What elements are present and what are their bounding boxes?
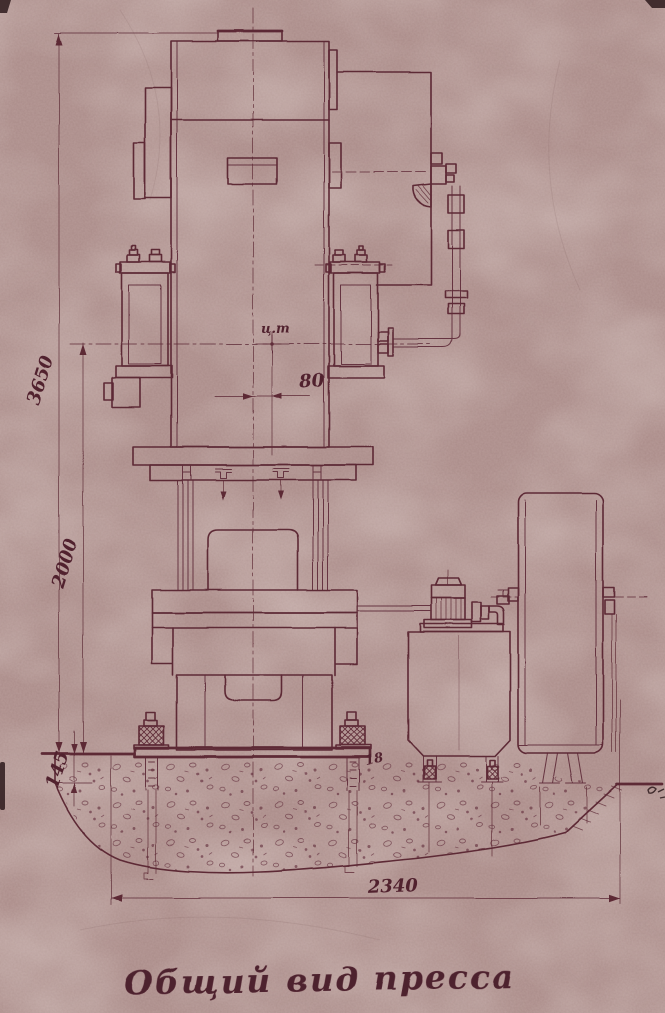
label-anchor-bolt: 18 [364,751,384,769]
dim-cg-offset: 80 [298,370,326,393]
drawing-canvas: 3650 2000 145 80 ц.т 18 2340 Общий вид п… [0,0,665,1013]
label-center-of-gravity: ц.т [261,322,290,337]
drawing-title: Общий вид пресса [124,957,516,1003]
scanned-press-drawing: 3650 2000 145 80 ц.т 18 2340 Общий вид п… [0,0,665,1013]
dim-foundation-width: 2340 [366,875,418,898]
